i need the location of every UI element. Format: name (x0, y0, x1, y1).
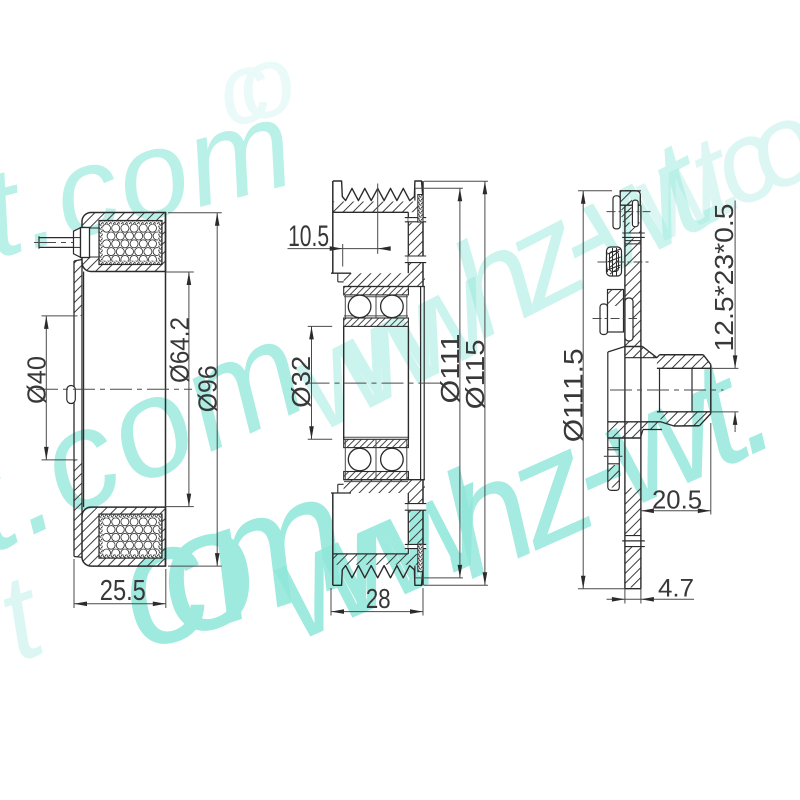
svg-text:12.5*23*0.5: 12.5*23*0.5 (709, 204, 739, 352)
svg-text:28: 28 (366, 583, 391, 614)
svg-text:25.5: 25.5 (100, 575, 146, 607)
svg-text:Ø32: Ø32 (286, 356, 316, 408)
svg-text:Ø111.5: Ø111.5 (559, 348, 589, 442)
svg-text:4.7: 4.7 (658, 575, 694, 603)
svg-text:Ø96: Ø96 (193, 365, 223, 412)
svg-text:20.5: 20.5 (652, 485, 702, 515)
svg-text:Ø115: Ø115 (460, 339, 490, 409)
svg-text:Ø64.2: Ø64.2 (164, 317, 194, 383)
svg-text:10.5: 10.5 (288, 220, 329, 253)
svg-text:Ø40: Ø40 (21, 356, 51, 404)
